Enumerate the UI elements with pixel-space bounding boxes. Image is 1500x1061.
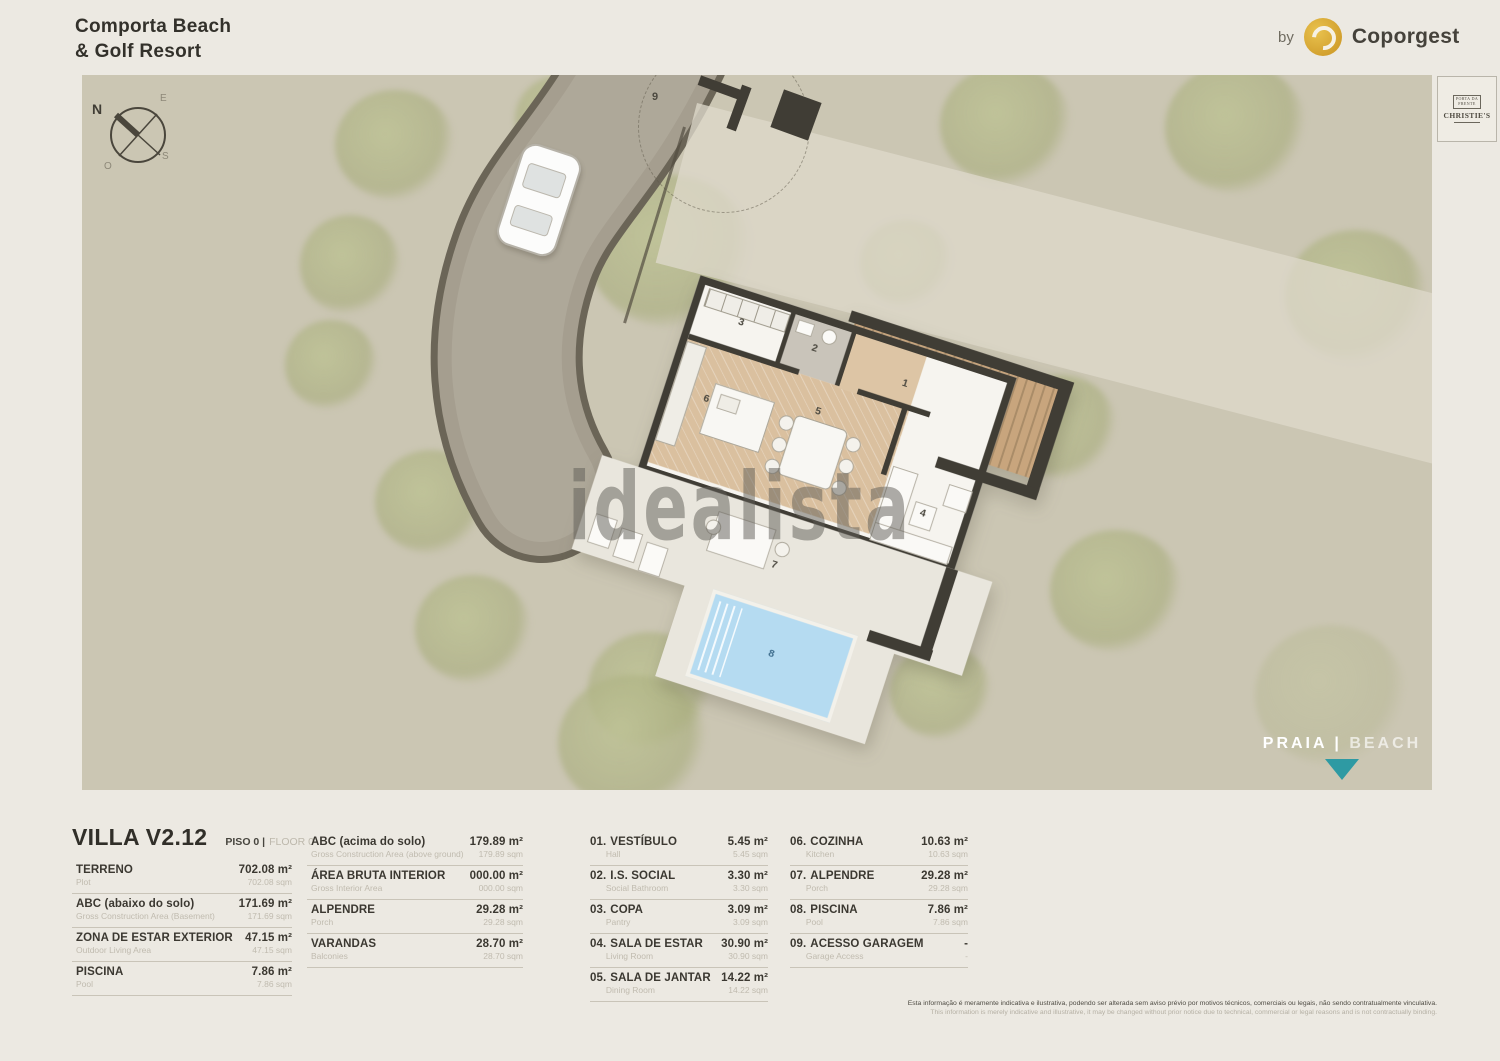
beach-arrow-icon (1325, 759, 1359, 780)
legend-entry-sub: 08.Pool7.86 sqm (790, 917, 968, 927)
legend-entry-sub: Gross Construction Area (Basement)171.69… (72, 911, 292, 921)
legend-column-4: 06.COZINHA10.63 m² 06.Kitchen10.63 sqm 0… (790, 832, 968, 968)
christies-badge: PORTA DAFRENTE CHRISTIE'S (1437, 76, 1497, 142)
disclaimer-pt: Esta informação é meramente indicativa e… (877, 999, 1437, 1008)
legend-entry-main: 08.PISCINA7.86 m² (790, 904, 968, 916)
legend-column-1: TERRENO702.08 m² Plot702.08 sqm ABC (aba… (72, 860, 292, 996)
byline-brand: Coporgest (1352, 25, 1460, 49)
page-title: Comporta Beach & Golf Resort (75, 15, 231, 64)
compass-s: S (162, 151, 169, 162)
legend-entry-sub: Gross Construction Area (above ground)17… (307, 849, 523, 859)
legend-entry-sub: 07.Porch29.28 sqm (790, 883, 968, 893)
car-windshield (521, 162, 567, 199)
legend-entry-main: 05.SALA DE JANTAR14.22 m² (590, 972, 768, 984)
floor-plan-image: 9 N E S O (82, 75, 1432, 790)
legend-entry-main: 03.COPA3.09 m² (590, 904, 768, 916)
legend-entry-sub: Gross Interior Area000.00 sqm (307, 883, 523, 893)
christies-badge-name: CHRISTIE'S (1444, 111, 1491, 120)
floor-label: PISO 0 |FLOOR 0 (225, 832, 314, 850)
legend-entry: 01.VESTÍBULO5.45 m² 01.Hall5.45 sqm (590, 832, 768, 866)
legend-entry: 06.COZINHA10.63 m² 06.Kitchen10.63 sqm (790, 832, 968, 866)
legend-entry-sub: Outdoor Living Area47.15 sqm (72, 945, 292, 955)
legend-entry-sub: 03.Pantry3.09 sqm (590, 917, 768, 927)
legend-entry: ZONA DE ESTAR EXTERIOR47.15 m² Outdoor L… (72, 928, 292, 962)
legend-entry: ÁREA BRUTA INTERIOR000.00 m² Gross Inter… (307, 866, 523, 900)
car-rear-window (509, 204, 554, 237)
coporgest-logo-icon (1304, 18, 1342, 56)
byline-by: by (1278, 29, 1294, 46)
page-title-line1: Comporta Beach (75, 15, 231, 40)
legend-entry: 02.I.S. SOCIAL3.30 m² 02.Social Bathroom… (590, 866, 768, 900)
legend-entry: 04.SALA DE ESTAR30.90 m² 04.Living Room3… (590, 934, 768, 968)
legend-entry: 09.ACESSO GARAGEM- 09.Garage Access- (790, 934, 968, 968)
legend-entry-main: ÁREA BRUTA INTERIOR000.00 m² (307, 870, 523, 882)
legend-entry-sub: Porch29.28 sqm (307, 917, 523, 927)
idealista-watermark: idealista (568, 453, 912, 562)
legend-entry-sub: Plot702.08 sqm (72, 877, 292, 887)
legend-header: VILLA V2.12 PISO 0 |FLOOR 0 (72, 824, 314, 851)
villa-title: VILLA V2.12 (72, 824, 207, 851)
page-title-line2: & Golf Resort (75, 40, 231, 65)
legend-entry-main: ABC (abaixo do solo)171.69 m² (72, 898, 292, 910)
legend-entry-main: ABC (acima do solo)179.89 m² (307, 836, 523, 848)
legend-entry-main: 02.I.S. SOCIAL3.30 m² (590, 870, 768, 882)
legend-entry-sub: 06.Kitchen10.63 sqm (790, 849, 968, 859)
legend-entry-main: 09.ACESSO GARAGEM- (790, 938, 968, 950)
legend-entry-main: TERRENO702.08 m² (72, 864, 292, 876)
legend-entry: TERRENO702.08 m² Plot702.08 sqm (72, 860, 292, 894)
disclaimer: Esta informação é meramente indicativa e… (877, 999, 1437, 1017)
legend-entry: 07.ALPENDRE29.28 m² 07.Porch29.28 sqm (790, 866, 968, 900)
beach-direction: PRAIA | BEACH (1222, 735, 1432, 780)
legend-entry: ABC (abaixo do solo)171.69 m² Gross Cons… (72, 894, 292, 928)
disclaimer-en: This information is merely indicative an… (877, 1008, 1437, 1017)
compass-o: O (104, 161, 112, 172)
legend-entry-main: ALPENDRE29.28 m² (307, 904, 523, 916)
compass-e: E (160, 93, 167, 104)
legend-entry: 08.PISCINA7.86 m² 08.Pool7.86 sqm (790, 900, 968, 934)
christies-badge-top: PORTA DAFRENTE (1453, 95, 1481, 109)
legend-entry: 03.COPA3.09 m² 03.Pantry3.09 sqm (590, 900, 768, 934)
legend-entry: ABC (acima do solo)179.89 m² Gross Const… (307, 832, 523, 866)
legend-entry: 05.SALA DE JANTAR14.22 m² 05.Dining Room… (590, 968, 768, 1002)
legend-column-3: 01.VESTÍBULO5.45 m² 01.Hall5.45 sqm 02.I… (590, 832, 768, 1002)
beach-label: PRAIA | BEACH (1222, 735, 1432, 753)
legend-column-2: ABC (acima do solo)179.89 m² Gross Const… (307, 832, 523, 968)
legend-entry-sub: 05.Dining Room14.22 sqm (590, 985, 768, 995)
compass: N E S O (90, 87, 186, 183)
developer-byline: by Coporgest (1278, 18, 1460, 56)
legend-entry-main: 01.VESTÍBULO5.45 m² (590, 836, 768, 848)
christies-badge-rule (1454, 122, 1480, 123)
legend-entry-main: ZONA DE ESTAR EXTERIOR47.15 m² (72, 932, 292, 944)
legend-entry-sub: 09.Garage Access- (790, 951, 968, 961)
legend-entry-sub: 01.Hall5.45 sqm (590, 849, 768, 859)
legend-entry-main: PISCINA7.86 m² (72, 966, 292, 978)
legend-entry-main: 06.COZINHA10.63 m² (790, 836, 968, 848)
legend-entry-sub: Pool7.86 sqm (72, 979, 292, 989)
legend-entry-sub: 04.Living Room30.90 sqm (590, 951, 768, 961)
compass-n: N (92, 101, 102, 117)
room-number-9: 9 (652, 91, 658, 103)
legend-entry-sub: 02.Social Bathroom3.30 sqm (590, 883, 768, 893)
legend-entry-sub: Balconies28.70 sqm (307, 951, 523, 961)
legend-entry-main: 07.ALPENDRE29.28 m² (790, 870, 968, 882)
legend-entry: PISCINA7.86 m² Pool7.86 sqm (72, 962, 292, 996)
legend-entry: VARANDAS28.70 m² Balconies28.70 sqm (307, 934, 523, 968)
legend-entry: ALPENDRE29.28 m² Porch29.28 sqm (307, 900, 523, 934)
legend-entry-main: 04.SALA DE ESTAR30.90 m² (590, 938, 768, 950)
legend-entry-main: VARANDAS28.70 m² (307, 938, 523, 950)
